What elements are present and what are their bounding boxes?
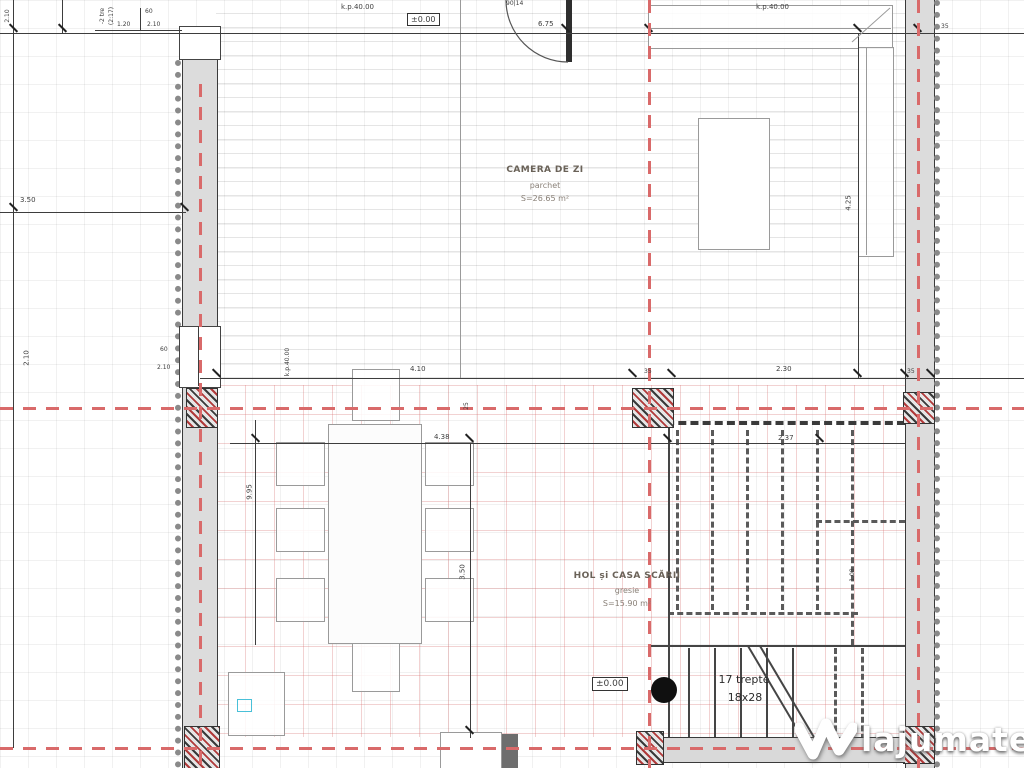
dim-label: 2.10 <box>147 22 160 28</box>
dim-label: 3.50 <box>460 564 467 580</box>
dim-label: 2.30 <box>776 366 792 373</box>
dim-label: 4.38 <box>434 434 450 441</box>
axis-line-red <box>0 407 1024 410</box>
level-marker-hall: ±0.00 <box>592 677 628 691</box>
kp-label-left: k.p.40.00 <box>341 4 374 11</box>
stair-size-label: 18x28 <box>728 692 763 703</box>
dim-label: 60 <box>160 347 168 353</box>
dim-label: 1.08 <box>850 568 856 581</box>
stair-count-label: 17 trepte <box>719 674 770 685</box>
door-swing-arc <box>506 0 568 62</box>
dim-label: 35 <box>907 369 915 375</box>
dim-label: 4.25 <box>846 195 853 211</box>
room-area-hall: S=15.90 m² <box>603 600 651 608</box>
dim-label: 2.10 <box>5 9 11 22</box>
dim-label: 2.10 <box>24 350 31 366</box>
axis-line-red <box>917 0 920 768</box>
dim-label: 3.50 <box>20 197 36 204</box>
level-marker-main: ±0.00 <box>407 13 440 26</box>
level-marker-dot <box>651 677 677 703</box>
dim-label: 60 <box>145 9 153 15</box>
curves-overlay <box>0 0 1024 768</box>
dim-label: 6.75 <box>538 21 554 28</box>
sofa-corner-line <box>852 8 890 42</box>
watermark: lajumate .ro <box>795 714 1024 764</box>
room-area-living: S=26.65 m² <box>521 195 569 203</box>
watermark-brand: lajumate <box>861 720 1024 759</box>
room-floor-living: parchet <box>530 182 561 190</box>
dim-label: 2.37 <box>778 435 794 442</box>
dim-label: 1.20 <box>117 22 130 28</box>
dim-label: 25 <box>464 402 470 410</box>
kp-label-window: k.p.40.00 <box>285 348 291 376</box>
steps-note: -2 tre <box>100 8 106 24</box>
kp-label-right: k.p.40.00 <box>756 4 789 11</box>
steps-note: (2:17) <box>109 7 115 25</box>
floor-plan: CAMERA DE ZI parchet S=26.65 m² HOL și C… <box>0 0 1024 768</box>
lajumate-logo-icon <box>795 714 857 764</box>
door-tag-label: 90|14 <box>506 1 523 7</box>
room-name-living: CAMERA DE ZI <box>506 166 583 175</box>
room-floor-hall: gresie <box>615 587 639 595</box>
dim-label: 35 <box>941 24 949 30</box>
dim-label: 2.10 <box>157 365 170 371</box>
axis-line-red <box>648 0 651 768</box>
dim-label: 9.95 <box>247 484 254 500</box>
dim-label: 4.10 <box>410 366 426 373</box>
axis-line-red <box>199 84 202 768</box>
dim-label: 35 <box>644 369 652 375</box>
room-name-hall: HOL și CASA SCĂRII <box>574 572 681 581</box>
